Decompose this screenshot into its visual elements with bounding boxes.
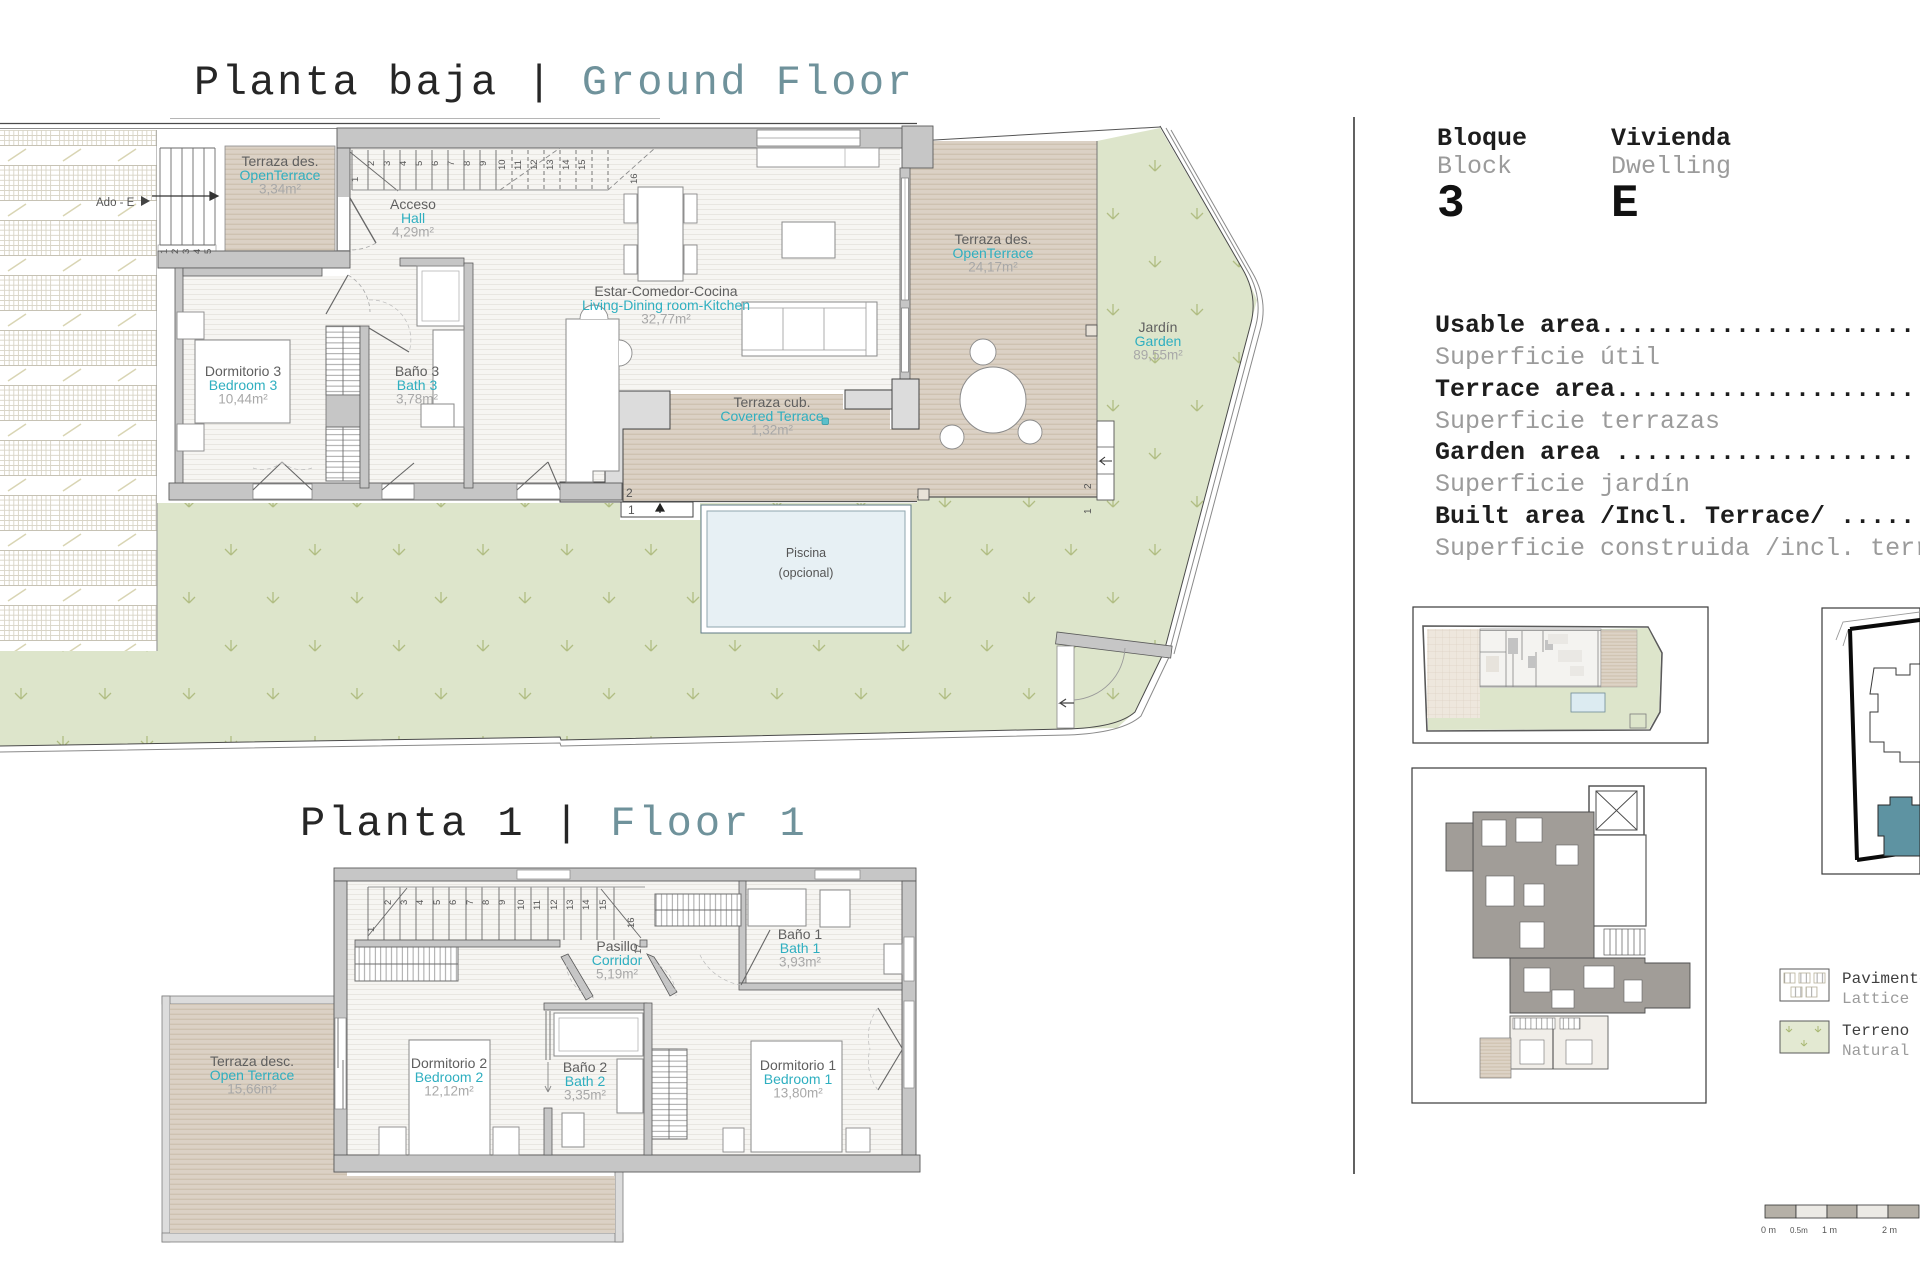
svg-text:3: 3 [382,161,393,166]
svg-text:3: 3 [1437,178,1465,230]
svg-text:1: 1 [159,249,170,254]
svg-text:7: 7 [465,900,476,905]
svg-text:Garden area ..................: Garden area ............................… [1435,438,1920,467]
svg-text:Ado - E: Ado - E [96,197,135,209]
svg-text:Bloque: Bloque [1437,124,1527,153]
svg-text:1 m: 1 m [1822,1225,1837,1235]
svg-text:Pavimento c: Pavimento c [1842,970,1920,988]
svg-text:1: 1 [350,177,361,182]
svg-text:24,17m²: 24,17m² [968,260,1018,275]
svg-text:3,93m²: 3,93m² [779,955,822,970]
svg-text:16: 16 [629,173,640,184]
svg-text:9: 9 [497,900,508,905]
svg-text:5,19m²: 5,19m² [596,967,639,982]
svg-text:13: 13 [565,899,576,910]
svg-text:2 m: 2 m [1882,1225,1897,1235]
svg-text:4: 4 [415,900,426,905]
svg-text:1: 1 [1083,508,1094,514]
svg-text:Planta baja | Ground Floor: Planta baja | Ground Floor [194,59,914,107]
svg-text:2: 2 [383,900,394,905]
svg-text:4: 4 [398,161,409,166]
svg-text:5: 5 [414,161,425,166]
svg-text:(opcional): (opcional) [779,566,834,580]
svg-text:0 m: 0 m [1761,1225,1776,1235]
svg-text:6: 6 [448,900,459,905]
svg-text:1,32m²: 1,32m² [751,423,794,438]
svg-text:Piscina: Piscina [786,546,826,560]
svg-text:Terreno nat: Terreno nat [1842,1022,1920,1040]
svg-text:1: 1 [628,503,635,517]
svg-text:15: 15 [577,159,588,170]
svg-text:Natural gro: Natural gro [1842,1042,1920,1060]
svg-text:12: 12 [549,899,560,910]
svg-text:2: 2 [170,249,181,254]
svg-text:10: 10 [516,899,527,910]
svg-text:13,80m²: 13,80m² [773,1086,823,1101]
svg-text:14: 14 [561,159,572,170]
svg-text:3: 3 [399,900,410,905]
svg-text:Lattice pav: Lattice pav [1842,990,1920,1008]
svg-text:14: 14 [581,899,592,910]
svg-text:9: 9 [478,161,489,166]
svg-text:7: 7 [446,161,457,166]
svg-text:Superficie construida /incl. t: Superficie construida /incl. terraza/ [1435,534,1920,563]
svg-text:8: 8 [462,161,473,166]
svg-text:2: 2 [366,161,377,166]
svg-text:Block: Block [1437,152,1512,181]
svg-text:16: 16 [626,917,637,928]
svg-text:2: 2 [626,486,633,500]
svg-text:2: 2 [1083,483,1094,489]
svg-text:Terrace area..................: Terrace area............................… [1435,375,1920,404]
svg-text:3: 3 [181,249,192,254]
svg-text:3,35m²: 3,35m² [564,1088,607,1103]
svg-text:12,12m²: 12,12m² [424,1084,474,1099]
svg-text:Planta 1 | Floor 1: Planta 1 | Floor 1 [300,800,808,848]
svg-text:5: 5 [203,249,214,254]
svg-text:4: 4 [192,249,203,254]
svg-text:Dwelling: Dwelling [1611,152,1731,181]
svg-text:5: 5 [432,900,443,905]
svg-text:15,66m²: 15,66m² [227,1082,277,1097]
svg-text:13: 13 [545,159,556,170]
svg-text:8: 8 [481,900,492,905]
svg-text:Vivienda: Vivienda [1611,124,1731,153]
svg-text:Usable area...................: Usable area.............................… [1435,311,1920,340]
svg-text:89,55m²: 89,55m² [1133,348,1183,363]
svg-text:11: 11 [513,160,524,170]
svg-text:32,77m²: 32,77m² [641,312,691,327]
svg-text:10,44m²: 10,44m² [218,392,268,407]
svg-text:0.5m: 0.5m [1790,1226,1808,1235]
svg-text:Built area /Incl. Terrace/ ...: Built area /Incl. Terrace/ .............… [1435,502,1920,531]
svg-text:E: E [1611,178,1639,230]
svg-text:15: 15 [598,899,609,910]
svg-text:1: 1 [366,927,377,932]
svg-text:12: 12 [529,159,540,170]
svg-text:11: 11 [532,900,543,910]
svg-text:3,78m²: 3,78m² [396,392,439,407]
svg-text:4,29m²: 4,29m² [392,225,435,240]
svg-text:Superficie terrazas: Superficie terrazas [1435,407,1720,436]
svg-text:Superficie jardín: Superficie jardín [1435,470,1690,499]
svg-text:10: 10 [497,159,508,170]
svg-text:Superficie útil: Superficie útil [1435,343,1660,372]
svg-text:3,34m²: 3,34m² [259,182,302,197]
svg-text:6: 6 [430,161,441,166]
